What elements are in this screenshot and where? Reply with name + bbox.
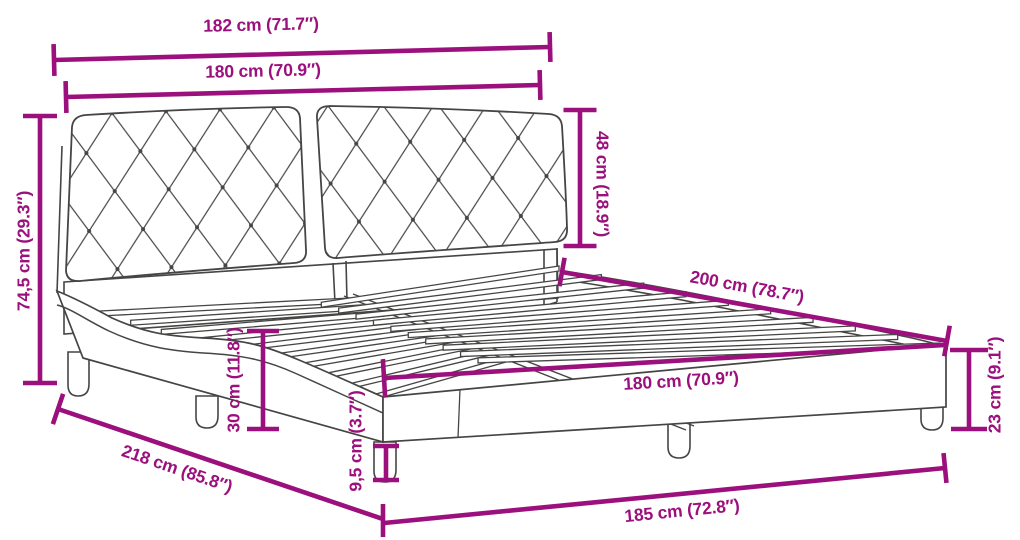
dimension-diagram: 182 cm (71.7″) 180 cm (70.9″) 48 cm (18.… (0, 0, 1020, 540)
front-middle-leg (668, 420, 690, 458)
dim-label-overall-height: 74,5 cm (29.3″) (14, 191, 35, 311)
side-middle-leg (196, 396, 218, 428)
dim-label-footend-height: 23 cm (9.1″) (985, 337, 1006, 433)
dim-label-overall-width-top: 182 cm (71.7″) (203, 13, 319, 37)
dim-label-leg-height: 9,5 cm (3.7″) (346, 390, 367, 491)
dim-label-frame-side-height: 30 cm (11.8″) (224, 327, 245, 432)
dim-label-headboard-cushion-height: 48 cm (18.9″) (592, 131, 613, 237)
dim-label-headboard-width: 180 cm (70.9″) (205, 59, 321, 83)
